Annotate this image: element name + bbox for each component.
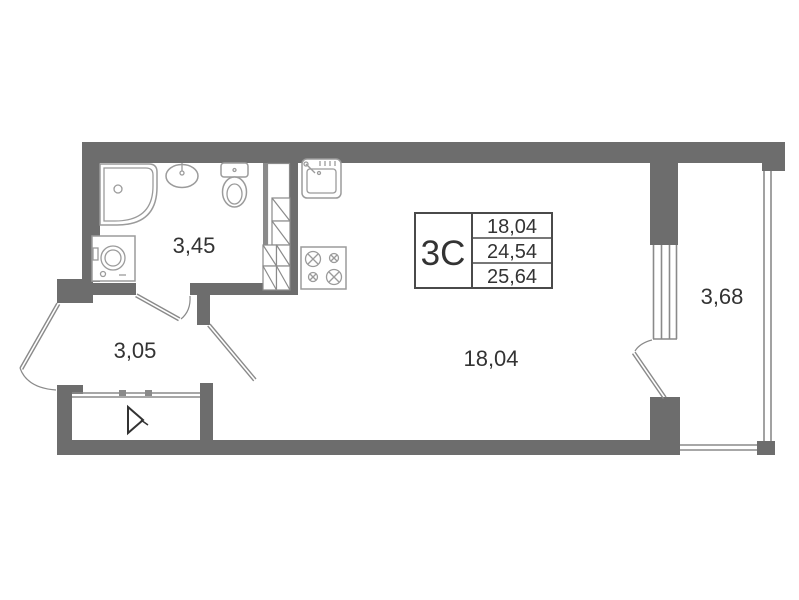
wardrobe-niche	[72, 390, 200, 433]
balcony-glazing	[680, 171, 771, 450]
wardrobe-arrow-icon	[128, 407, 148, 433]
ventilation-shaft	[263, 163, 290, 290]
toilet-icon	[221, 163, 248, 207]
wall-balcony-bottom-cap	[757, 441, 775, 455]
hallway-area-label: 3,05	[114, 338, 157, 363]
wall-top	[82, 142, 785, 163]
living-room-door	[208, 324, 256, 381]
wall-balcony-pier-bottom	[650, 397, 680, 442]
shower-icon	[100, 164, 157, 225]
wall-entry-top-corner	[57, 279, 93, 303]
wall-balcony-pier-top	[650, 142, 678, 245]
wall-bottom	[57, 440, 680, 455]
kitchen-sink-icon	[302, 159, 341, 198]
unit-code-label: 3С	[421, 234, 466, 273]
stove-icon	[301, 247, 346, 289]
bathroom-door	[136, 294, 191, 321]
wall-kitchen-west	[290, 163, 298, 295]
wall-hallway-door-jamb	[197, 295, 210, 325]
bathroom-area-label: 3,45	[173, 233, 216, 258]
floor-plan: 3,45 3,05 18,04 3,68 3С 18,04 24,54 25,6…	[0, 0, 799, 600]
area-table-row-3: 25,64	[487, 266, 537, 288]
wall-bathroom-bottom-left	[88, 283, 136, 295]
entry-door	[20, 303, 60, 390]
living-room-area-label: 18,04	[463, 346, 518, 371]
window-living-balcony	[653, 245, 677, 339]
washing-machine-icon	[92, 236, 135, 281]
balcony-door	[633, 340, 667, 399]
area-table: 3С 18,04 24,54 25,64	[415, 213, 552, 288]
wall-niche-right	[200, 383, 213, 440]
area-table-row-2: 24,54	[487, 241, 537, 263]
balcony-area-label: 3,68	[701, 284, 744, 309]
wall-balcony-top-cap	[762, 142, 785, 171]
area-table-row-1: 18,04	[487, 216, 537, 238]
floor-plan-canvas: 3,45 3,05 18,04 3,68 3С 18,04 24,54 25,6…	[0, 0, 799, 600]
washbasin-icon	[166, 163, 198, 188]
